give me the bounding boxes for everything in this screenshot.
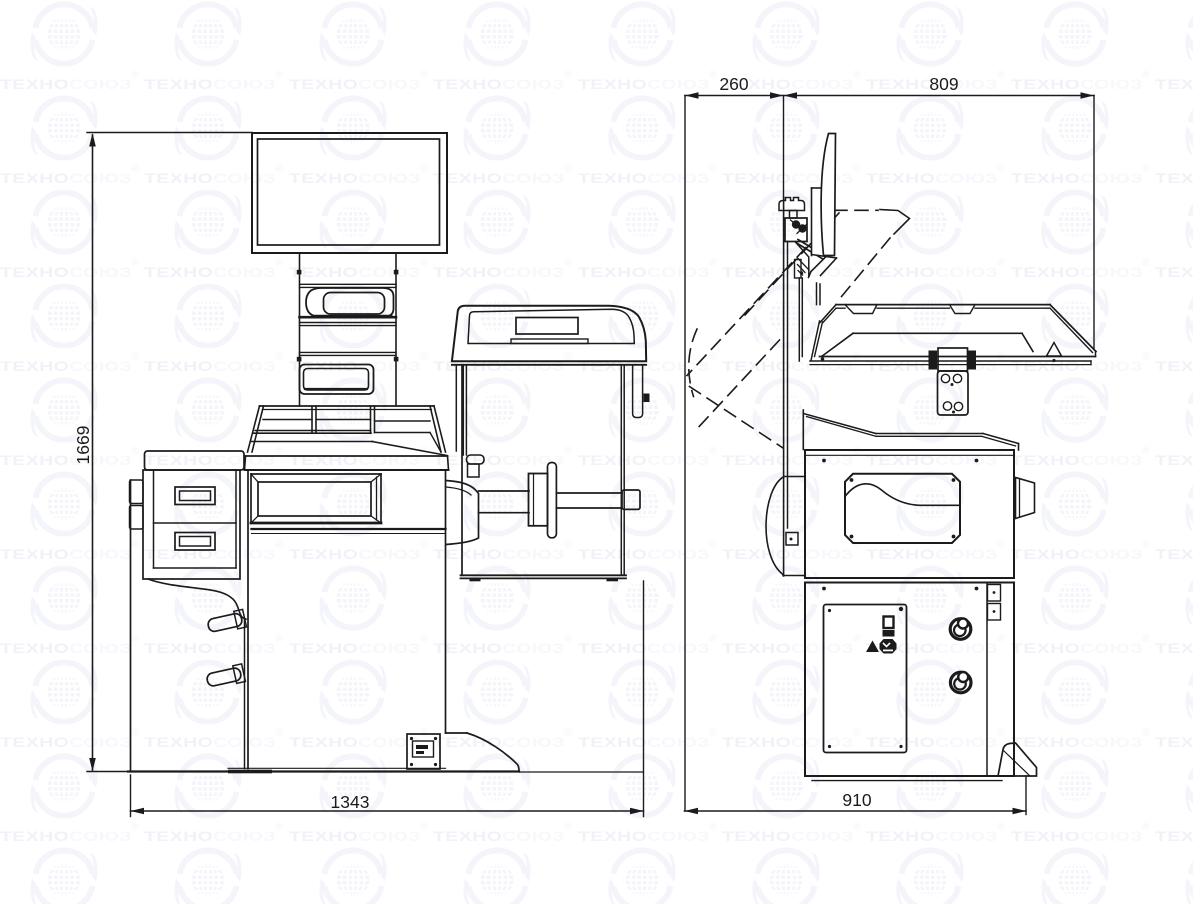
svg-text:260: 260: [719, 74, 748, 94]
svg-text:809: 809: [929, 74, 958, 94]
svg-text:910: 910: [842, 790, 871, 810]
svg-text:1343: 1343: [331, 792, 370, 812]
svg-text:1669: 1669: [73, 426, 93, 465]
